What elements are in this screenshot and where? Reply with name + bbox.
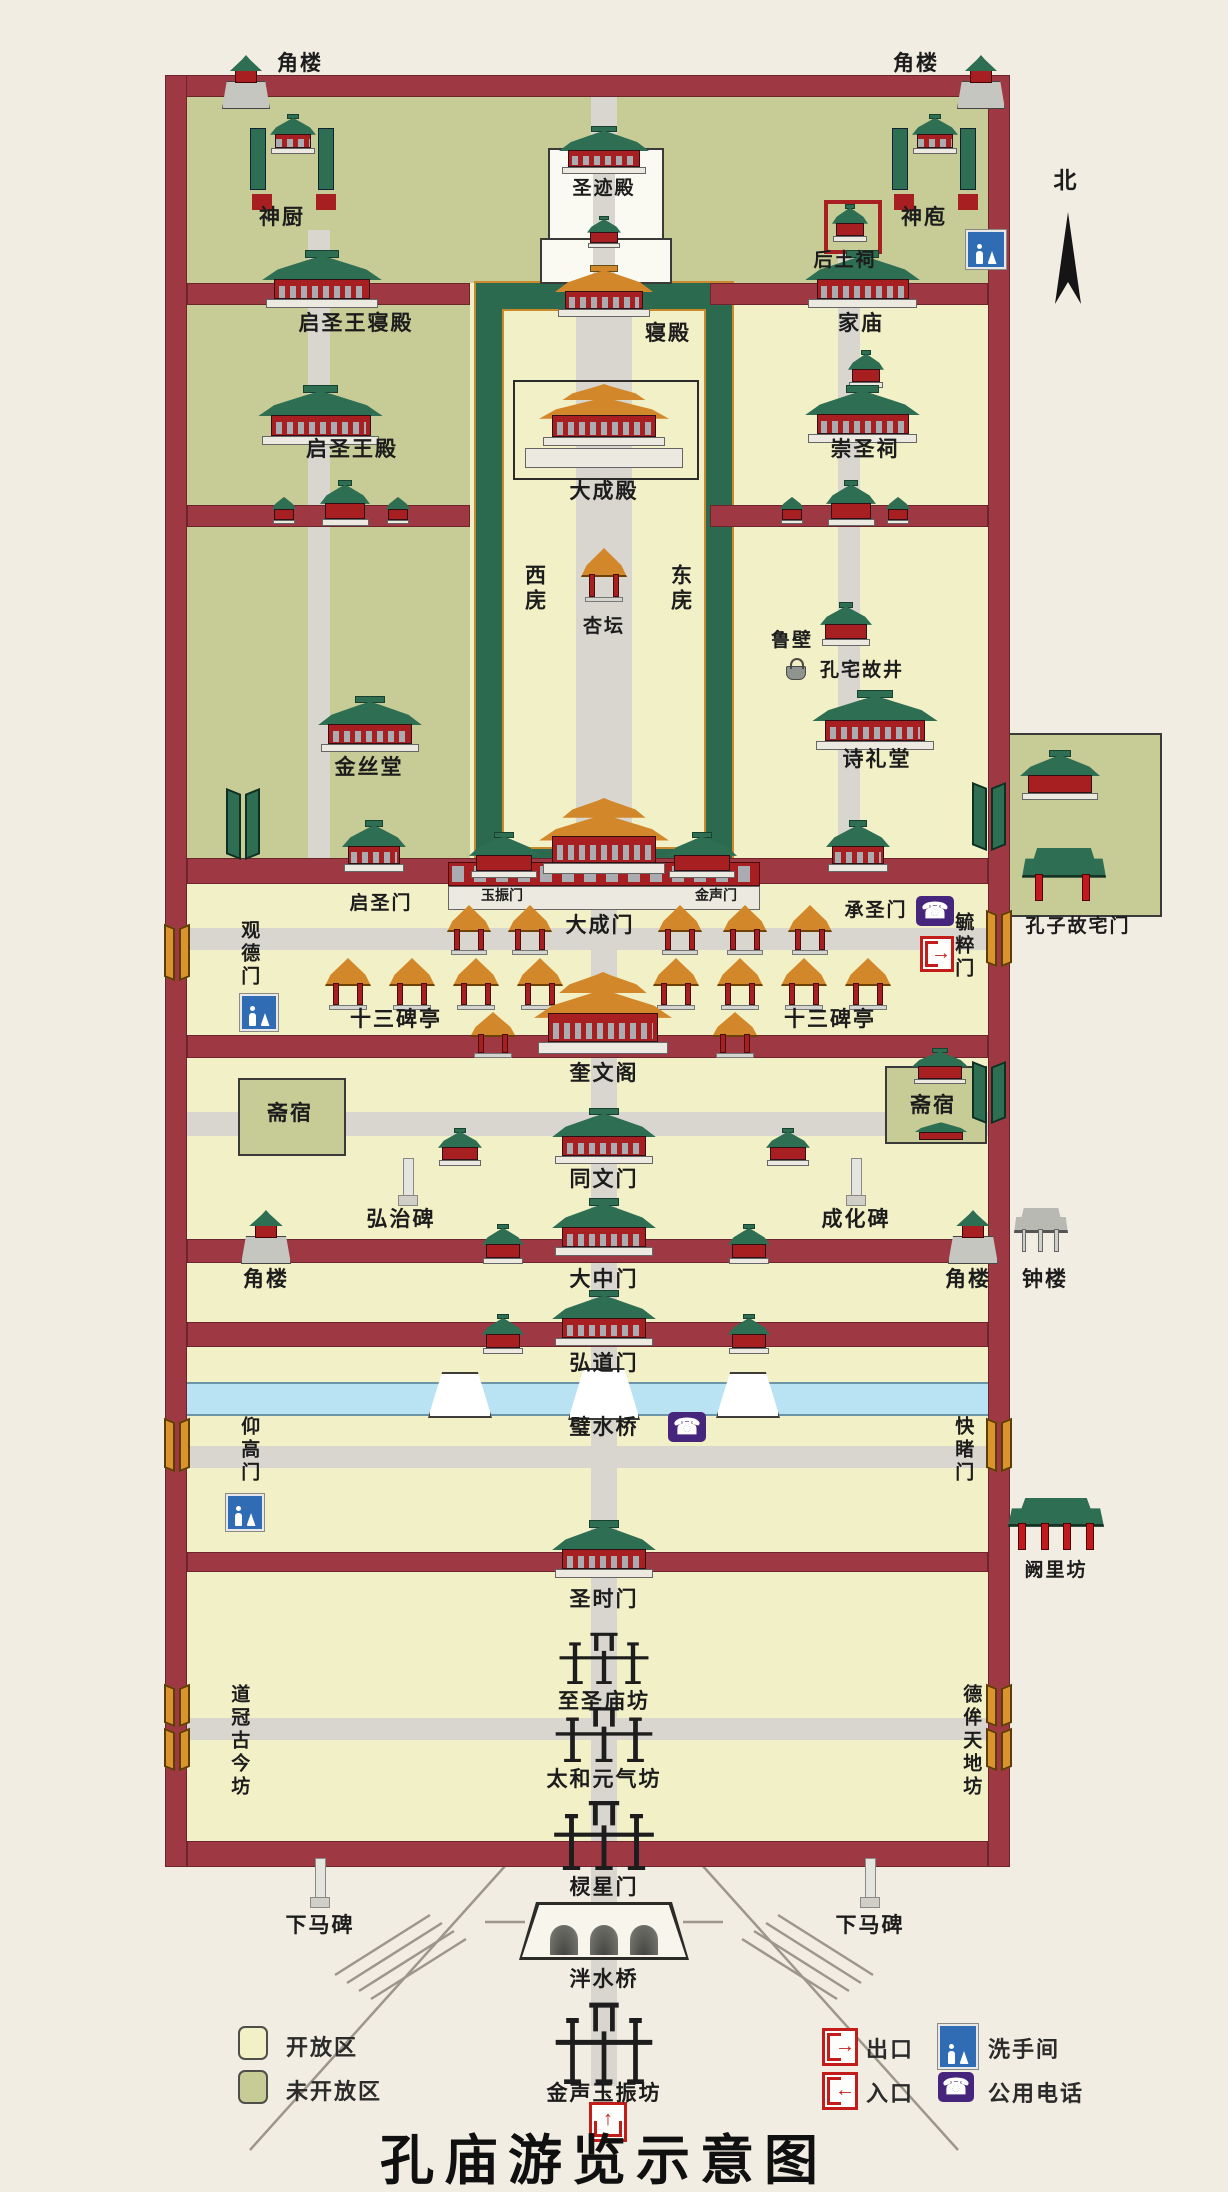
qishengmen-label: 启圣门: [349, 893, 412, 914]
west-row2-side-gate-1: [272, 494, 296, 524]
kuaidumen-door-icon: [988, 1418, 1010, 1472]
jinsitang-label: 金丝堂: [335, 756, 404, 780]
shenchu-side-room-e: [316, 194, 336, 210]
legend-open-label: 开放区: [286, 2030, 358, 2062]
chongshengci-hall: [805, 385, 920, 443]
restroom-icon: [966, 230, 1006, 269]
north-arrow-icon: [1053, 212, 1083, 308]
yanggaomen-door-icon: [166, 1418, 188, 1472]
stele-pavilion: [325, 958, 371, 1010]
hongdaomen-label: 弘道门: [570, 1352, 639, 1376]
west-cloister-hall-icon: [228, 788, 258, 860]
tongwenmen-west-pavilion: [438, 1128, 482, 1166]
legend-entrance-label: 入口: [866, 2076, 914, 2108]
kongzhaigujing-label: 孔宅故井: [820, 660, 904, 681]
qindian-label: 寝殿: [645, 322, 691, 346]
xiamabei-east-stele: [859, 1858, 881, 1908]
yucuimen-label: 毓粹门: [952, 912, 973, 981]
shenchu-east-hall: [318, 128, 334, 190]
panshuiqiao-bridge: [519, 1902, 689, 1960]
stele-pavilion: [781, 958, 827, 1010]
shisanbeiting-label: 十三碑亭: [784, 1008, 876, 1032]
jinshengmen-label: 金声门: [695, 888, 737, 904]
xingtan-label: 杏坛: [583, 616, 625, 637]
stele-pavilion: [723, 905, 767, 955]
east-row2-gate: [826, 480, 876, 526]
phone-icon: ☎: [916, 896, 954, 926]
bishuiqiao-label: 璧水桥: [570, 1416, 639, 1440]
stele-pavilion: [788, 905, 832, 955]
zhaisu-label: 斋宿: [267, 1102, 313, 1126]
east-row2-side-gate-2: [886, 494, 910, 524]
kong-well-icon: [786, 666, 806, 680]
shenchu-west-hall: [250, 128, 266, 190]
east-row2-side-gate-1: [780, 494, 804, 524]
lingxingmen-label: 棂星门: [570, 1876, 639, 1900]
legend-exit-label: 出口: [866, 2032, 914, 2064]
dachengdian-platform: [525, 448, 683, 468]
chenghuabei-label: 成化碑: [822, 1208, 891, 1232]
tongwenmen-gate: [552, 1108, 656, 1164]
shenchu-label: 神厨: [259, 206, 305, 230]
demoutiandi-paifang-icon-2: [988, 1728, 1010, 1770]
zhaisu-east-rear: [914, 1120, 968, 1144]
guandemen-label: 观德门: [238, 920, 259, 989]
dongwu-label: 东庑: [668, 564, 692, 614]
stele-pavilion: [508, 905, 552, 955]
hongdaomen-east-gate: [728, 1314, 770, 1354]
corner-tower-label: 角楼: [277, 52, 323, 76]
dachengmen-label: 大成门: [566, 914, 635, 938]
map-title: 孔庙游览示意图: [380, 2116, 828, 2192]
lubi-wall-shrine: [820, 602, 872, 646]
stele-pavilion: [658, 905, 702, 955]
legend-phone-icon: ☎: [938, 2072, 974, 2102]
dazhongmen-label: 大中门: [570, 1268, 639, 1292]
legend-entrance-icon: ←: [822, 2072, 858, 2110]
daoguangujinfang-label: 道冠古今坊: [228, 1684, 249, 1799]
demoutiandi-paifang-icon: [988, 1684, 1010, 1726]
kuaidumen-label: 快睹门: [952, 1416, 973, 1485]
east-wall: [988, 75, 1010, 1867]
qindian-hall: [555, 265, 653, 317]
shilitang-label: 诗礼堂: [843, 748, 912, 772]
qishengwangdian-label: 启圣王殿: [306, 438, 398, 462]
east-cloister-hall-icon: [974, 782, 1004, 850]
corner-tower-northeast: [957, 55, 1005, 109]
legend-closed-label: 未开放区: [286, 2074, 382, 2106]
kongzi-guzhaimen-label: 孔子故宅门: [1025, 916, 1130, 937]
zhonglou-label: 钟楼: [1022, 1268, 1068, 1292]
corner-tower-midwest: [241, 1210, 291, 1264]
kongzi-guzhaimen-gate: [1022, 848, 1106, 906]
stele-pavilion: [717, 958, 763, 1010]
daoguangujin-paifang-icon: [166, 1684, 188, 1726]
chenghuabei-stele: [845, 1158, 867, 1206]
corner-tower-label: 角楼: [243, 1268, 289, 1292]
shengshimen-label: 圣时门: [570, 1588, 639, 1612]
shenpao-label: 神庖: [901, 206, 947, 230]
kuiwenge-west-pavilion: [470, 1012, 516, 1058]
qishengwang-qindian-label: 启圣王寝殿: [299, 312, 414, 336]
stele-pavilion: [389, 958, 435, 1010]
shengjidian-label: 圣迹殿: [572, 178, 635, 199]
chengshengmen-gate: [826, 820, 890, 872]
legend-exit-icon: →: [822, 2028, 858, 2066]
dachengdian-label: 大成殿: [570, 480, 639, 504]
demoutiandifang-label: 德侔天地坊: [960, 1684, 981, 1799]
taiheyuanqifang-label: 太和元气坊: [547, 1768, 662, 1792]
legend-open-swatch: [238, 2026, 268, 2060]
yanggaomen-label: 仰高门: [238, 1416, 259, 1485]
shilitang-hall: [812, 690, 938, 750]
yuzhenmen-label: 玉振门: [481, 888, 523, 904]
corner-tower-label: 角楼: [945, 1268, 991, 1292]
dachengmen-west-wing: [469, 832, 539, 878]
hongdaomen-gate: [552, 1290, 656, 1346]
chongshengci-label: 崇圣祠: [831, 438, 900, 462]
tongwenmen-label: 同文门: [570, 1168, 639, 1192]
shenpao-side-room-e: [958, 194, 978, 210]
zhishengmiaofang-label: 至圣庙坊: [558, 1690, 650, 1714]
stele-pavilion: [845, 958, 891, 1010]
corner-tower-northwest: [222, 55, 270, 109]
shenpao-east-hall: [960, 128, 976, 190]
xiwu-label: 西庑: [522, 564, 546, 614]
shengjidian-inner-gate: [587, 216, 621, 248]
jiamiao-rear-gate: [848, 350, 884, 388]
west-row2-side-gate-2: [386, 494, 410, 524]
west-row2-gate: [320, 480, 370, 526]
legend-restroom-label: 洗手间: [988, 2032, 1060, 2064]
dazhongmen-gate: [552, 1198, 656, 1256]
xiamabei-label: 下马碑: [836, 1914, 905, 1938]
yucuimen-door-icon: [988, 910, 1010, 968]
xiamabei-west-stele: [309, 1858, 331, 1908]
exit-icon: →: [920, 936, 954, 972]
chengshengmen-label: 承圣门: [844, 900, 907, 921]
lubi-label: 鲁壁: [771, 630, 813, 651]
kuiwenge-east-pavilion: [712, 1012, 758, 1058]
stele-pavilion: [453, 958, 499, 1010]
houtuci-label: 后土祠: [813, 250, 876, 271]
qishengwang-qindian-hall: [262, 250, 382, 308]
shenpao-west-hall: [892, 128, 908, 190]
shenchu-gate: [270, 114, 316, 154]
qishengwangdian-hall: [258, 385, 383, 445]
zhishengmiaofang-outline: [546, 1626, 662, 1684]
jinshengyuzhenfang-label: 金声玉振坊: [547, 2082, 662, 2106]
corner-tower-label: 角楼: [893, 52, 939, 76]
panshuiqiao-label: 泮水桥: [570, 1968, 639, 1992]
daoguangujin-paifang-icon-2: [166, 1728, 188, 1770]
jiamiao-label: 家庙: [838, 312, 884, 336]
jinshengyuzhenfang-outline: [541, 1992, 667, 2084]
stele-pavilion: [447, 905, 491, 955]
phone-icon: ☎: [668, 1412, 706, 1442]
confucius-temple-map: ☎ ☎ → ↑ 角楼 角楼 北 神厨 圣迹殿 后土祠 神庖 启圣王寝殿 寝殿 家…: [0, 0, 1228, 2192]
kuiwenge-label: 奎文阁: [570, 1062, 639, 1086]
dazhongmen-west-gate: [482, 1224, 524, 1264]
zhonglou-tower: [1014, 1208, 1068, 1256]
dazhongmen-east-gate: [728, 1224, 770, 1264]
jinsitang-hall: [318, 696, 422, 752]
shisanbeiting-label: 十三碑亭: [350, 1008, 442, 1032]
dachengdian-hall: [539, 384, 669, 446]
cross-path-3: [187, 1446, 988, 1468]
guandemen-door-icon: [166, 924, 188, 982]
shengjidian-hall: [559, 126, 649, 174]
zhaisu-east-hall-icon: [974, 1062, 1004, 1124]
restroom-icon: [240, 994, 278, 1031]
quelifang-paifang: [1008, 1498, 1104, 1554]
shenpao-gate: [912, 114, 958, 154]
xiamabei-label: 下马碑: [286, 1914, 355, 1938]
north-label: 北: [1054, 168, 1079, 194]
quelifang-label: 阙里坊: [1024, 1560, 1087, 1581]
zhaisu-label: 斋宿: [910, 1094, 956, 1118]
qishengmen-gate: [342, 820, 406, 872]
legend-closed-swatch: [238, 2070, 268, 2104]
hongzhibei-label: 弘治碑: [367, 1208, 436, 1232]
xingtan-pavilion: [581, 548, 627, 602]
corner-tower-mideast: [948, 1210, 998, 1264]
dachengmen-east-wing: [667, 832, 737, 878]
houtuci-shrine: [832, 204, 868, 242]
kong-mansion-hall: [1020, 750, 1100, 800]
hongzhibei-stele: [397, 1158, 419, 1206]
kuiwenge-pavilion: [534, 972, 672, 1054]
shengshimen-gate: [552, 1520, 656, 1578]
legend-phone-label: 公用电话: [988, 2076, 1084, 2108]
zhaisu-east-gate: [912, 1048, 968, 1084]
dachengmen-gate: [539, 798, 669, 874]
tongwenmen-east-pavilion: [766, 1128, 810, 1166]
north-wall: [165, 75, 1010, 97]
lingxingmen-outline: [539, 1792, 669, 1870]
restroom-icon: [226, 1494, 264, 1531]
hongdaomen-west-gate: [482, 1314, 524, 1354]
legend-restroom-icon: [938, 2024, 978, 2069]
